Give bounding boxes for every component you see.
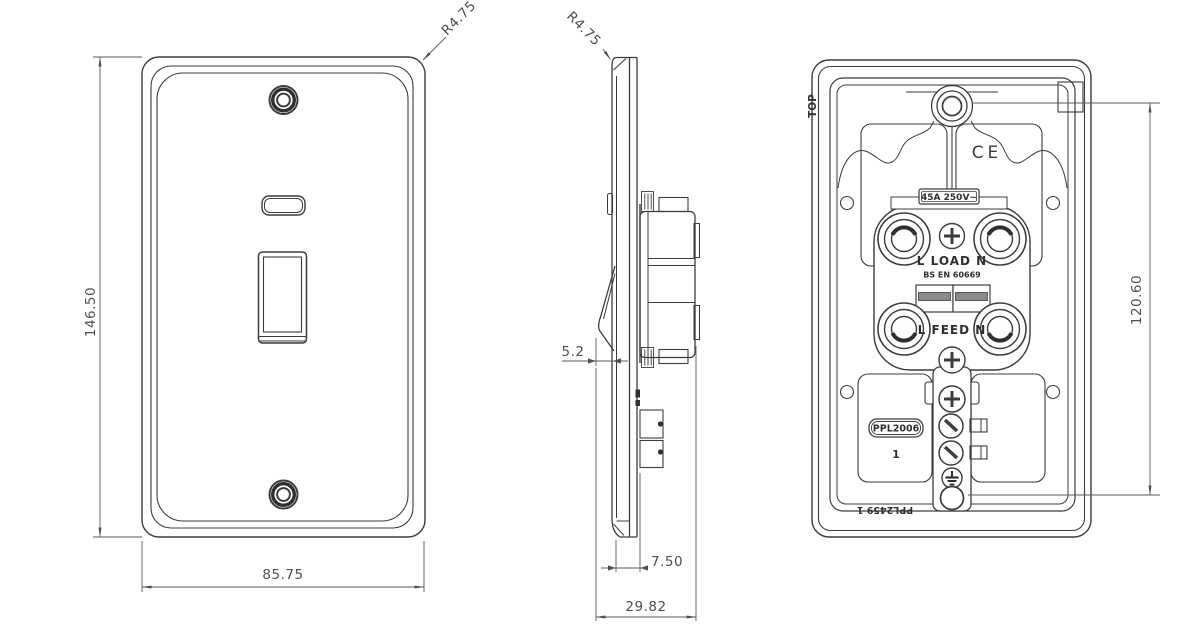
front-top-screw — [270, 86, 298, 114]
switch-mechanism — [874, 189, 1030, 370]
front-bottom-screw — [270, 481, 298, 509]
load-text: L LOAD N — [917, 254, 987, 268]
back-mark-2 — [636, 400, 641, 406]
standard-text: BS EN 60669 — [923, 271, 981, 280]
mech-top-terminal-bump — [642, 192, 689, 212]
front-plate-edge-contour-1 — [151, 66, 413, 528]
front-view — [142, 57, 425, 537]
side-view — [599, 58, 700, 538]
front-neon-indicator-window — [262, 196, 305, 215]
terminal-dot-1 — [658, 421, 663, 426]
rear-view — [812, 60, 1091, 537]
gang-number-text: 1 — [892, 448, 900, 461]
feed-centre-screw — [939, 347, 965, 373]
rivet-hole-top-right — [1047, 197, 1060, 210]
mould-number-text: PPL2459 1 — [857, 504, 913, 515]
strip-philips-screw — [939, 386, 965, 412]
side-mechanism-profile — [636, 192, 700, 468]
front-plate-edge-contour-2 — [157, 73, 408, 521]
front-view-dimensions — [93, 37, 446, 592]
side-top-corner-chord — [614, 59, 627, 71]
rocker-projection-dim-text: 5.2 — [562, 344, 585, 360]
front-rocker-switch — [259, 252, 307, 343]
top-orientation-text: TOP — [807, 94, 819, 118]
overall-depth-dim-text: 29.82 — [625, 599, 666, 615]
front-radius-leader — [423, 37, 446, 60]
earth-terminal-strip — [925, 347, 987, 511]
rivet-hole-bottom-right — [1047, 386, 1060, 399]
earth-symbol-screw — [942, 468, 962, 488]
rivet-hole-top-left — [841, 197, 854, 210]
feed-text: L FEED N — [918, 323, 987, 337]
contact-windows — [916, 285, 990, 312]
side-plate-profile — [608, 58, 638, 538]
rivet-hole-bottom-left — [841, 386, 854, 399]
technical-drawing-canvas: 146.50 85.75 R4.75 — [0, 0, 1200, 641]
back-mark-1 — [636, 390, 641, 398]
fixing-centres-dim-text: 120.60 — [1129, 275, 1145, 325]
rear-top-screw-boss — [932, 86, 973, 127]
plate-depth-arrow-right — [640, 565, 648, 570]
strip-bottom-hole — [941, 487, 964, 510]
side-radius-leader — [603, 49, 611, 60]
rocker-arrow-left — [588, 358, 596, 363]
front-width-dim-text: 85.75 — [262, 567, 303, 583]
front-plate-outline — [142, 57, 425, 537]
plate-depth-arrow-left — [608, 565, 616, 570]
side-plate-front-face — [612, 58, 637, 538]
front-plate-outer-edge — [142, 57, 425, 537]
part-number-text: PPL2006 — [873, 424, 920, 435]
rating-text: 45A 250V~ — [921, 193, 977, 203]
plate-depth-dim-text: 7.50 — [651, 554, 683, 570]
front-height-dim-text: 146.50 — [83, 287, 99, 337]
drawing-svg: 146.50 85.75 R4.75 — [0, 0, 1200, 641]
rear-corner-cutout — [1058, 82, 1083, 112]
front-radius-dim-text: R4.75 — [439, 0, 480, 39]
ce-mark-text: CE — [972, 143, 1003, 163]
terminal-dot-2 — [658, 449, 663, 454]
load-centre-screw — [940, 224, 965, 249]
side-bottom-corner-chord — [614, 524, 625, 536]
side-radius-dim-text: R4.75 — [563, 9, 604, 50]
compartment-bottom-right — [971, 374, 1045, 482]
